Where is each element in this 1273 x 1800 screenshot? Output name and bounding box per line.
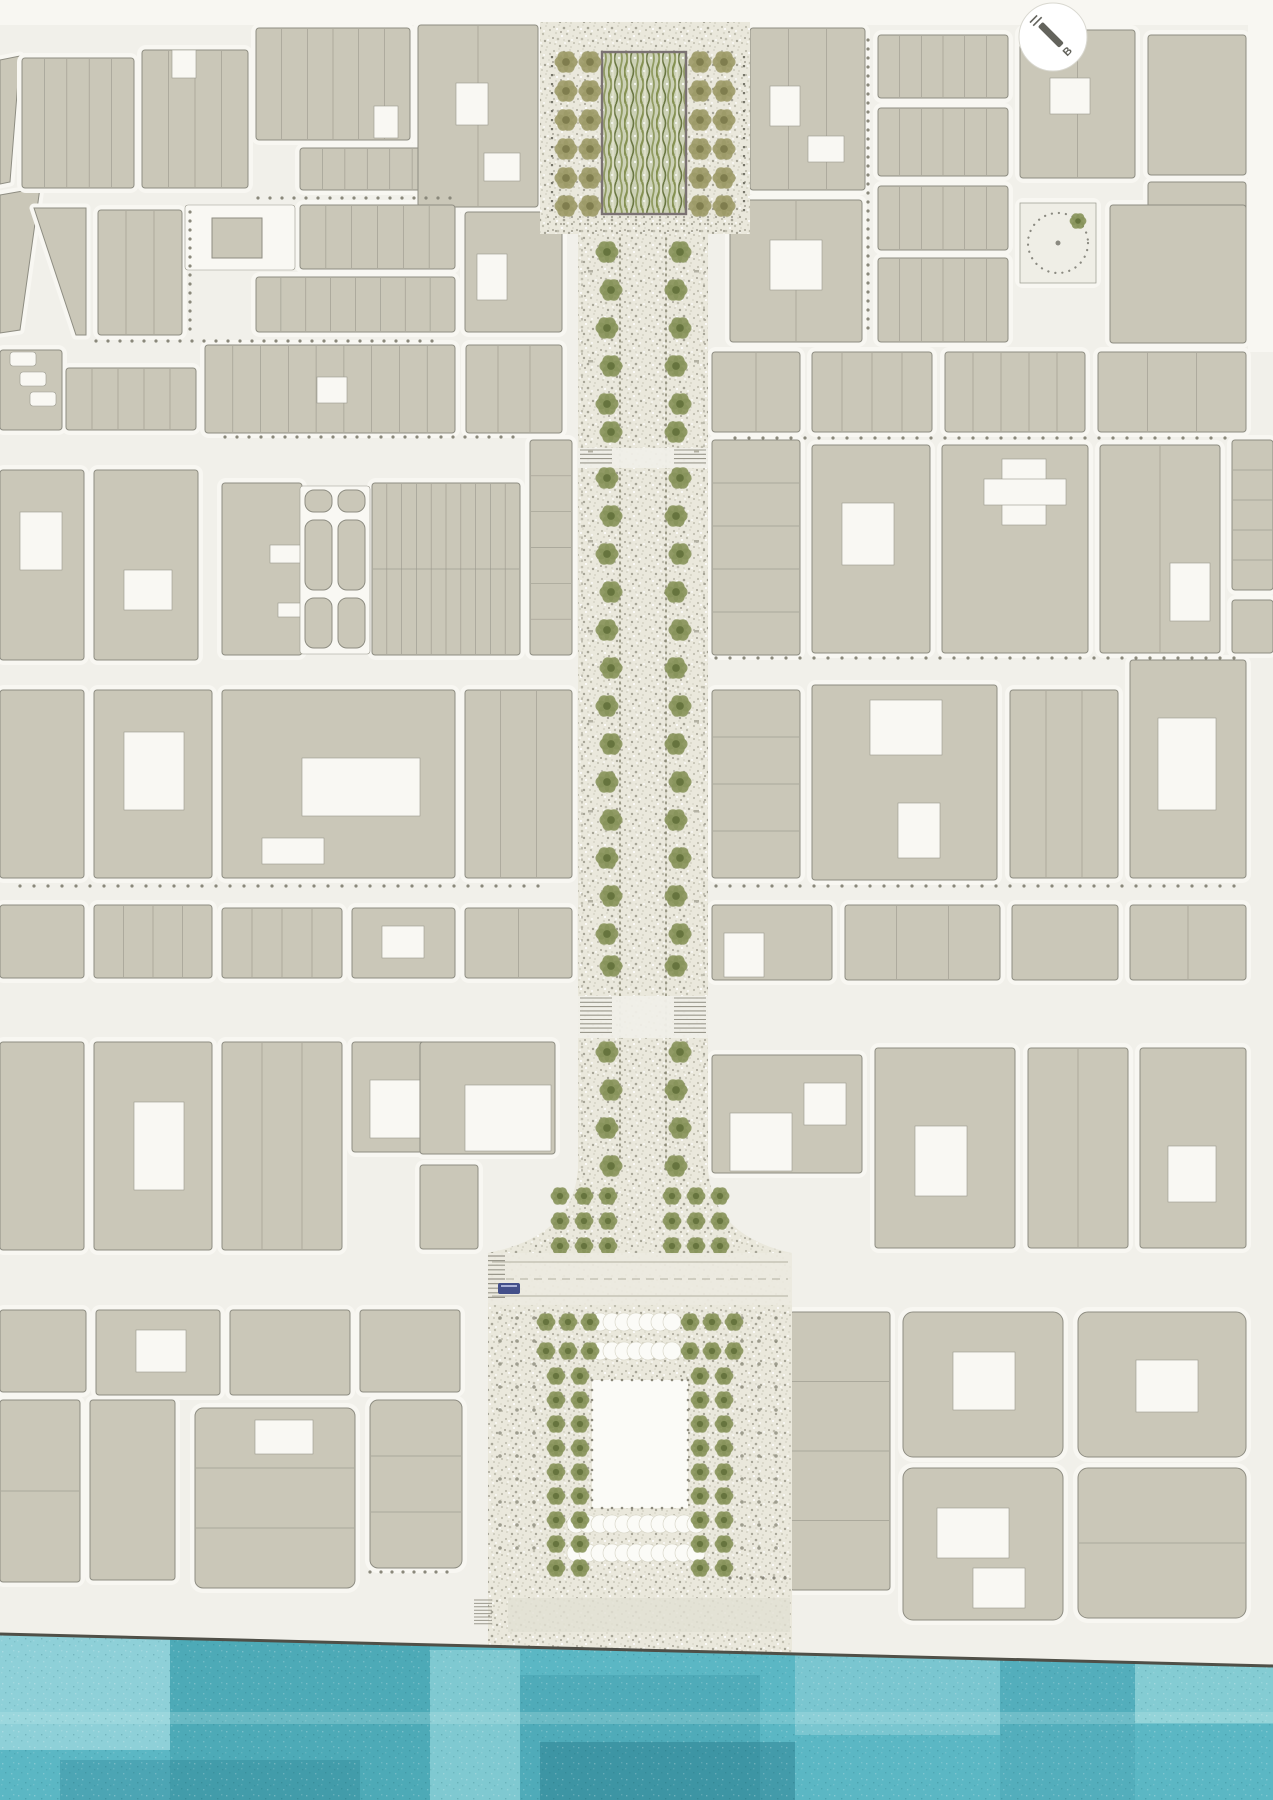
courtyard [255, 1420, 313, 1454]
crosswalk-band [578, 448, 708, 468]
market-hall [212, 218, 262, 258]
courtyard [262, 838, 324, 864]
courtyard [1158, 718, 1216, 810]
courtyard [124, 570, 172, 610]
central-mall [592, 1380, 688, 1508]
bollard [551, 137, 553, 139]
bench [694, 360, 699, 363]
city-block [1098, 352, 1246, 432]
courtyard [724, 933, 764, 977]
city-block [1110, 205, 1246, 343]
row-building [305, 598, 332, 648]
bench [694, 540, 699, 543]
courtyard [278, 603, 302, 617]
bollard [743, 200, 745, 202]
city-block [222, 483, 302, 655]
courtyard [124, 732, 184, 810]
courtyard [1136, 1360, 1198, 1412]
courtyard [1168, 1146, 1216, 1202]
bollard [743, 83, 745, 85]
courtyard [915, 1126, 967, 1196]
bench [694, 810, 699, 813]
row-building [338, 598, 365, 648]
courtyard [1050, 78, 1090, 114]
courtyard [1170, 563, 1210, 621]
city-block [66, 368, 196, 430]
bollard [551, 56, 553, 58]
city-block [1232, 600, 1273, 653]
masterplan-canvas: B [0, 0, 1273, 1800]
bollard [743, 128, 745, 130]
city-block [845, 905, 1000, 980]
bollard [743, 164, 745, 166]
bollard [551, 182, 553, 184]
bench [588, 360, 593, 363]
city-block [222, 1042, 342, 1250]
bollard [551, 101, 553, 103]
formal-garden [602, 52, 686, 214]
north-arrow: B [1009, 0, 1097, 81]
bench [588, 450, 593, 453]
courtyard [20, 512, 62, 570]
courtyard [937, 1508, 1009, 1558]
bench [588, 540, 593, 543]
bench [588, 270, 593, 273]
bollard [743, 146, 745, 148]
courtyard [842, 503, 894, 565]
street-margin [1248, 0, 1273, 352]
city-block [0, 1042, 84, 1250]
courtyard [465, 1085, 551, 1151]
city-block [1012, 905, 1118, 980]
bench [588, 630, 593, 633]
courtyard [134, 1102, 184, 1190]
bollard [743, 137, 745, 139]
courtyard [804, 1083, 846, 1125]
city-block [945, 352, 1085, 432]
bollard [551, 83, 553, 85]
courtyard [374, 106, 398, 138]
courtyard [317, 377, 347, 403]
courtyard [808, 136, 844, 162]
courtyard [270, 545, 302, 563]
bollard [743, 119, 745, 121]
city-block [94, 470, 198, 660]
bollard [743, 209, 745, 211]
courtyard [730, 1113, 792, 1171]
courtyard [973, 1568, 1025, 1608]
city-block [0, 1310, 86, 1392]
bollard [551, 92, 553, 94]
courtyard [484, 153, 520, 181]
bollard [551, 164, 553, 166]
bollard [743, 155, 745, 157]
courtyard [136, 1330, 186, 1372]
courtyard [477, 254, 507, 300]
bollard [551, 155, 553, 157]
courtyard [770, 240, 822, 290]
bollard [551, 128, 553, 130]
courtyard [172, 50, 196, 78]
bench [694, 270, 699, 273]
row-building [305, 520, 332, 590]
bollard [743, 92, 745, 94]
bench [588, 810, 593, 813]
open-plot [20, 372, 46, 386]
courtyard [898, 803, 940, 858]
city-block [360, 1310, 460, 1392]
bollard [551, 200, 553, 202]
open-plot [30, 392, 56, 406]
city-block [370, 1400, 462, 1568]
bollard [551, 191, 553, 193]
city-block [1148, 35, 1246, 175]
city-block [1232, 440, 1273, 590]
bench [588, 900, 593, 903]
bollard [743, 110, 745, 112]
city-block [1010, 690, 1118, 878]
city-block [750, 28, 865, 190]
row-building [338, 490, 365, 512]
city-block [98, 210, 182, 335]
row-building [305, 490, 332, 512]
quay-strip [508, 1598, 790, 1632]
city-block [466, 345, 562, 433]
city-block [0, 690, 84, 878]
masterplan-map [0, 0, 1273, 1800]
bollard [743, 191, 745, 193]
city-block [712, 440, 800, 655]
bench [694, 630, 699, 633]
bollard [551, 146, 553, 148]
city-block [90, 1400, 175, 1580]
city-block [420, 1165, 478, 1249]
courtyard [870, 700, 942, 755]
courtyard [953, 1352, 1015, 1410]
open-plot [10, 352, 36, 366]
courtyard [382, 926, 424, 958]
bollard [743, 74, 745, 76]
courtyard [770, 86, 800, 126]
city-block [0, 905, 84, 978]
row-building [338, 520, 365, 590]
bollard [743, 101, 745, 103]
bench [694, 900, 699, 903]
bollard [551, 74, 553, 76]
bollard [551, 119, 553, 121]
bench [694, 720, 699, 723]
bollard [743, 65, 745, 67]
courtyard [984, 479, 1066, 505]
bench [588, 720, 593, 723]
bollard [551, 173, 553, 175]
bollard [551, 209, 553, 211]
bollard [551, 65, 553, 67]
bollard [743, 182, 745, 184]
city-block [230, 1310, 350, 1395]
bus [498, 1283, 520, 1294]
courtyard [302, 758, 420, 816]
city-block [22, 58, 134, 188]
bollard [551, 110, 553, 112]
bollard [743, 56, 745, 58]
courtyard [456, 83, 488, 125]
bench [694, 450, 699, 453]
bollard [743, 173, 745, 175]
city-block [465, 690, 572, 878]
